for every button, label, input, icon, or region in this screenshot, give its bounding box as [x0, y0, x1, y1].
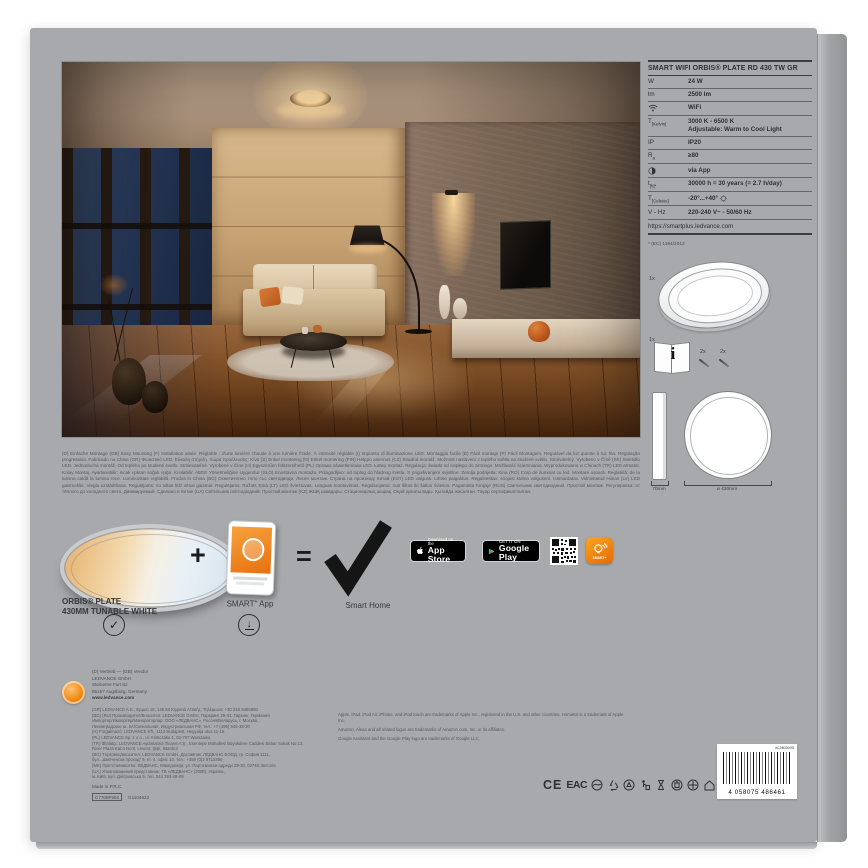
side-profile-drawing — [652, 392, 667, 480]
spec-row-connectivity: WiFi — [648, 102, 812, 116]
spec-row-lumen: lm 2500 lm — [648, 89, 812, 102]
tidyman-icon — [639, 779, 651, 791]
bulb-wifi-icon — [592, 542, 608, 557]
living-room-photo — [62, 62, 640, 437]
spec-row-wattage: W 24 W — [648, 76, 812, 89]
spec-label: lm — [648, 91, 688, 99]
production-codes: C7708F902 G1104622 — [92, 793, 149, 801]
regulation-footnote: * (EC) 1194/2012 — [648, 242, 812, 247]
package-back-panel: SMART WIFI ORBIS® PLATE RD 430 TW GR W 2… — [0, 0, 868, 868]
made-in-label: Made in P.R.C. — [92, 784, 123, 789]
smart-app-label: SMART+ App — [215, 599, 285, 609]
eac-mark: EAC — [566, 779, 587, 791]
google-play-logo-icon — [488, 546, 495, 557]
spec-row-cri: Ra ≥80 — [648, 150, 812, 164]
app-dial — [242, 538, 265, 561]
smartphone-image — [226, 520, 277, 596]
spec-row-ip: IP IP20 — [648, 137, 812, 150]
indoor-use-icon — [703, 779, 716, 791]
barcode-bars — [723, 752, 791, 784]
weee-bin-icon — [671, 779, 683, 791]
spec-row-voltage: V - Hz 220-240 V~ - 50/60 Hz — [648, 206, 812, 219]
google-play-badge: GET IT ONGoogle Play — [482, 540, 540, 562]
box-bottom-edge — [36, 842, 817, 849]
info-icon: i — [654, 344, 692, 364]
spec-row-kelvin: T[Kelvin] 3000 K - 6500 KAdjustable: War… — [648, 116, 812, 137]
distributor-addresses: (GR) LEDVANCE A.E., Ερμού 15, 145 64 Κηφ… — [92, 707, 342, 780]
spec-row-dimming: via App — [648, 164, 812, 178]
wifi-icon — [648, 104, 658, 112]
spec-label: V - Hz — [648, 209, 688, 217]
equals-sign: = — [296, 541, 312, 572]
protection-class-icon — [687, 779, 699, 791]
plate-qty-label: 1x — [649, 276, 655, 282]
dimmer-icon — [648, 167, 656, 175]
box-side-edge — [817, 34, 847, 842]
smartplus-app-icon: SMART+ — [586, 537, 613, 564]
multilingual-fine-print: (D) Einfache Montage (GB) Easy Mounting … — [62, 451, 640, 496]
barcode-product-code: AC08020/05 — [775, 746, 794, 750]
spec-value: WiFi — [688, 104, 701, 112]
spec-row-lifetime: t[h]* 30000 h = 30 years (= 2.7 h/day) — [648, 178, 812, 192]
big-checkmark-icon — [318, 514, 396, 598]
ce-mark: CE — [543, 778, 562, 792]
spec-table: SMART WIFI ORBIS® PLATE RD 430 TW GR W 2… — [648, 60, 812, 247]
spec-value: 30000 h = 30 years (= 2.7 h/day) — [688, 180, 782, 188]
recyclable-circle-icon — [623, 779, 635, 791]
ledvance-logo — [62, 681, 85, 704]
top-view-drawing — [684, 391, 772, 479]
spec-value: 2500 lm — [688, 91, 711, 99]
barcode-digits: 4 058075 486461 — [717, 789, 797, 796]
spec-label: IP — [648, 139, 688, 147]
checked-circle-icon: ✓ — [103, 614, 125, 636]
spec-value: 24 W — [688, 78, 703, 86]
smartplus-url: https://smartplus.ledvance.com — [648, 220, 812, 235]
spec-row-temperature: T[Celsius] -20°...+40° — [648, 192, 812, 206]
qr-code — [550, 537, 578, 565]
anchors-qty-label: 2x — [720, 349, 726, 355]
hourglass-icon — [655, 779, 667, 791]
product-title: SMART WIFI ORBIS® PLATE RD 430 TW GR — [648, 62, 812, 76]
depth-dimension-bracket — [651, 481, 669, 486]
temp-range-icon — [720, 195, 727, 202]
vendor-website: www.ledvance.com — [92, 695, 332, 702]
recycle-icon — [607, 779, 619, 791]
plain-code: G1104622 — [128, 795, 149, 800]
manual-booklet-icon: i — [654, 343, 692, 371]
diameter-dimension-bracket — [684, 481, 772, 486]
screws-qty-label: 2x — [700, 349, 706, 355]
spec-value: IP20 — [688, 139, 701, 147]
download-circle-icon: ↓ — [238, 614, 260, 636]
trademark-notices: Apple, iPad, iPod Air, iPhone, and iPod … — [338, 712, 630, 746]
smart-home-label: Smart Home — [322, 601, 414, 610]
depth-dimension-label: 70mm — [645, 487, 673, 492]
plus-sign: + — [190, 540, 206, 571]
ean-barcode-label: AC08020/05 4 058075 486461 — [717, 744, 797, 799]
spec-label: W — [648, 78, 688, 86]
green-dot-icon — [591, 779, 603, 791]
app-store-badge: Download on theApp Store — [410, 540, 466, 562]
photo-vignette — [62, 62, 640, 437]
spec-value: 220-240 V~ - 50/60 Hz — [688, 209, 752, 217]
diameter-dimension-label: ø 430mm — [684, 487, 770, 492]
spec-value: via App — [688, 167, 711, 175]
spec-value: ≥80 — [688, 152, 698, 160]
vendor-block: (D) Vertrieb — (GB) Vendor LEDVANCE GmbH… — [92, 669, 332, 702]
boxed-code: C7708F902 — [92, 793, 122, 801]
apple-logo-icon — [416, 545, 424, 557]
